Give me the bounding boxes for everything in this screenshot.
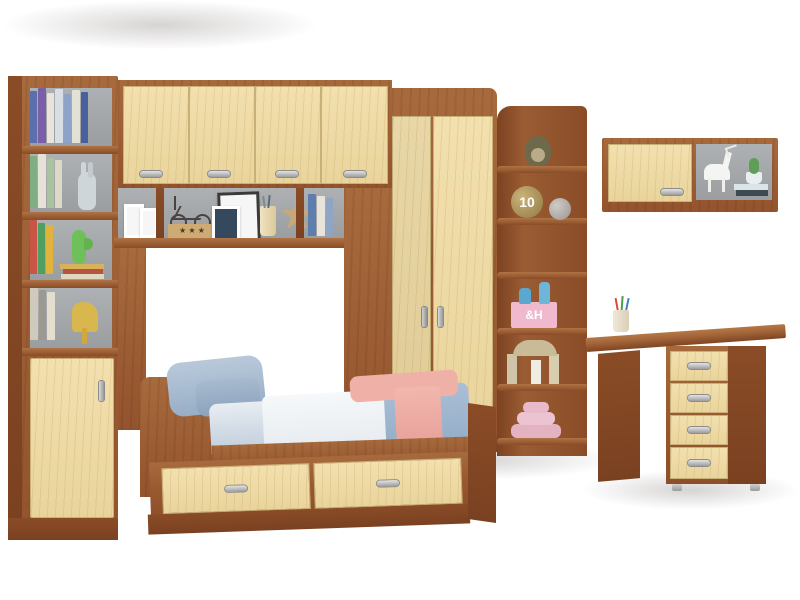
rabbit-figurine <box>78 172 96 210</box>
bicycle-handlebar <box>174 196 176 210</box>
drawer-handle <box>225 485 247 492</box>
bookcase-plinth <box>8 518 118 540</box>
book <box>30 220 37 274</box>
book <box>55 89 63 143</box>
door-handle <box>276 171 298 177</box>
round-box <box>517 412 555 425</box>
monogram-box: &H <box>511 302 557 328</box>
bookcase-shelf-3 <box>30 220 112 280</box>
corner-shelf-board <box>497 384 587 391</box>
round-box <box>511 424 561 438</box>
corner-shelf-unit: 10 &H <box>497 106 587 456</box>
desk-drawer-4 <box>670 447 728 479</box>
door-handle <box>661 189 683 195</box>
shelf-board <box>22 212 118 220</box>
frog-belly <box>531 148 545 162</box>
book <box>30 91 37 143</box>
corner-shelf-board <box>497 272 587 279</box>
bridge-door-1 <box>123 86 189 184</box>
cactus-plant <box>749 158 759 174</box>
wardrobe-handle <box>438 307 443 327</box>
desk-foot <box>672 484 682 491</box>
book <box>317 196 325 236</box>
desk <box>580 290 790 500</box>
book <box>72 90 80 143</box>
bed-drawer-1 <box>161 463 311 514</box>
bookcase <box>8 76 118 540</box>
bed-side-panel <box>468 403 496 523</box>
bookcase-side-panel <box>8 76 22 540</box>
door-handle <box>140 171 162 177</box>
bicycle-figurine <box>170 194 210 228</box>
book <box>30 156 37 208</box>
desk-drawer-2 <box>670 383 728 413</box>
wall-cabinet-door <box>608 144 692 202</box>
desk-drawer-3 <box>670 415 728 445</box>
desk-drawer-1 <box>670 351 728 381</box>
shelf-divider <box>156 188 164 238</box>
wall-cabinet <box>602 138 778 212</box>
door-handle <box>344 171 366 177</box>
desk-pencil-cup <box>613 310 629 332</box>
desk-pedestal <box>666 346 766 484</box>
book <box>38 223 45 274</box>
photo-frame <box>212 206 240 242</box>
number-ball: 10 <box>511 186 543 218</box>
pencil-cup <box>260 206 276 236</box>
floor-shadow <box>0 0 320 50</box>
corner-shelf-board <box>497 166 587 173</box>
gray-sphere <box>549 198 571 220</box>
round-box <box>523 402 549 413</box>
corner-shelf-board <box>497 328 587 335</box>
bridge-door-3 <box>255 86 321 184</box>
wardrobe-handle <box>422 307 427 327</box>
deer-leg <box>722 178 725 192</box>
deer-leg <box>708 178 711 192</box>
drawer-handle <box>688 363 710 369</box>
book <box>47 292 55 340</box>
book <box>38 154 46 208</box>
toy-block <box>531 360 541 384</box>
corner-shelf-board <box>497 218 587 225</box>
deer-antler <box>725 144 740 157</box>
ball-number-label: 10 <box>511 186 543 218</box>
toy-block <box>507 354 517 384</box>
furniture-set-photo: ★ ★ ★ <box>0 0 800 600</box>
stacked-books <box>736 190 768 196</box>
book <box>81 92 88 143</box>
blue-bottle <box>519 288 531 304</box>
bookcase-shelf-2 <box>30 154 112 212</box>
toy-arch <box>513 340 557 356</box>
rabbit-ear <box>88 162 93 178</box>
shelf-books <box>308 194 342 238</box>
door-handle <box>99 381 104 401</box>
bridge-door-2 <box>189 86 255 184</box>
shelf-divider <box>296 188 304 238</box>
book <box>47 93 54 143</box>
drawer-handle <box>688 395 710 401</box>
corner-shelf-board <box>497 438 587 445</box>
bed <box>138 345 476 535</box>
book <box>39 290 46 340</box>
blue-bottle <box>539 282 550 304</box>
shelf-board <box>22 280 118 288</box>
bookcase-shelf-1 <box>30 88 112 146</box>
toy-block <box>549 354 559 384</box>
toy-figurine-leg <box>82 328 87 344</box>
star-plaque: ★ ★ ★ <box>168 224 216 238</box>
bridge-cabinet <box>118 80 392 188</box>
pedestal-side-panel <box>728 346 766 484</box>
stacked-books <box>61 274 104 279</box>
rabbit-ear <box>81 162 86 178</box>
drawer-handle <box>688 460 710 466</box>
book <box>326 198 333 236</box>
desk-foot <box>750 484 760 491</box>
cactus-arm <box>84 238 93 250</box>
book <box>30 288 38 340</box>
shelf-board <box>22 146 118 154</box>
bed-drawer-2 <box>313 458 463 509</box>
shelf-board <box>22 348 118 356</box>
box-monogram-label: &H <box>511 302 557 328</box>
drawer-handle <box>688 427 710 433</box>
desk-side-panel <box>598 350 640 482</box>
drawer-handle <box>377 480 399 487</box>
wall-cabinet-open-shelf <box>696 144 772 200</box>
bookcase-shelf-4 <box>30 288 112 348</box>
book <box>55 160 62 208</box>
door-handle <box>208 171 230 177</box>
bookcase-door <box>30 358 114 518</box>
book <box>46 225 53 274</box>
book <box>308 194 316 236</box>
book <box>38 88 46 143</box>
book <box>64 94 71 143</box>
book <box>47 158 54 208</box>
bridge-door-4 <box>321 86 388 184</box>
